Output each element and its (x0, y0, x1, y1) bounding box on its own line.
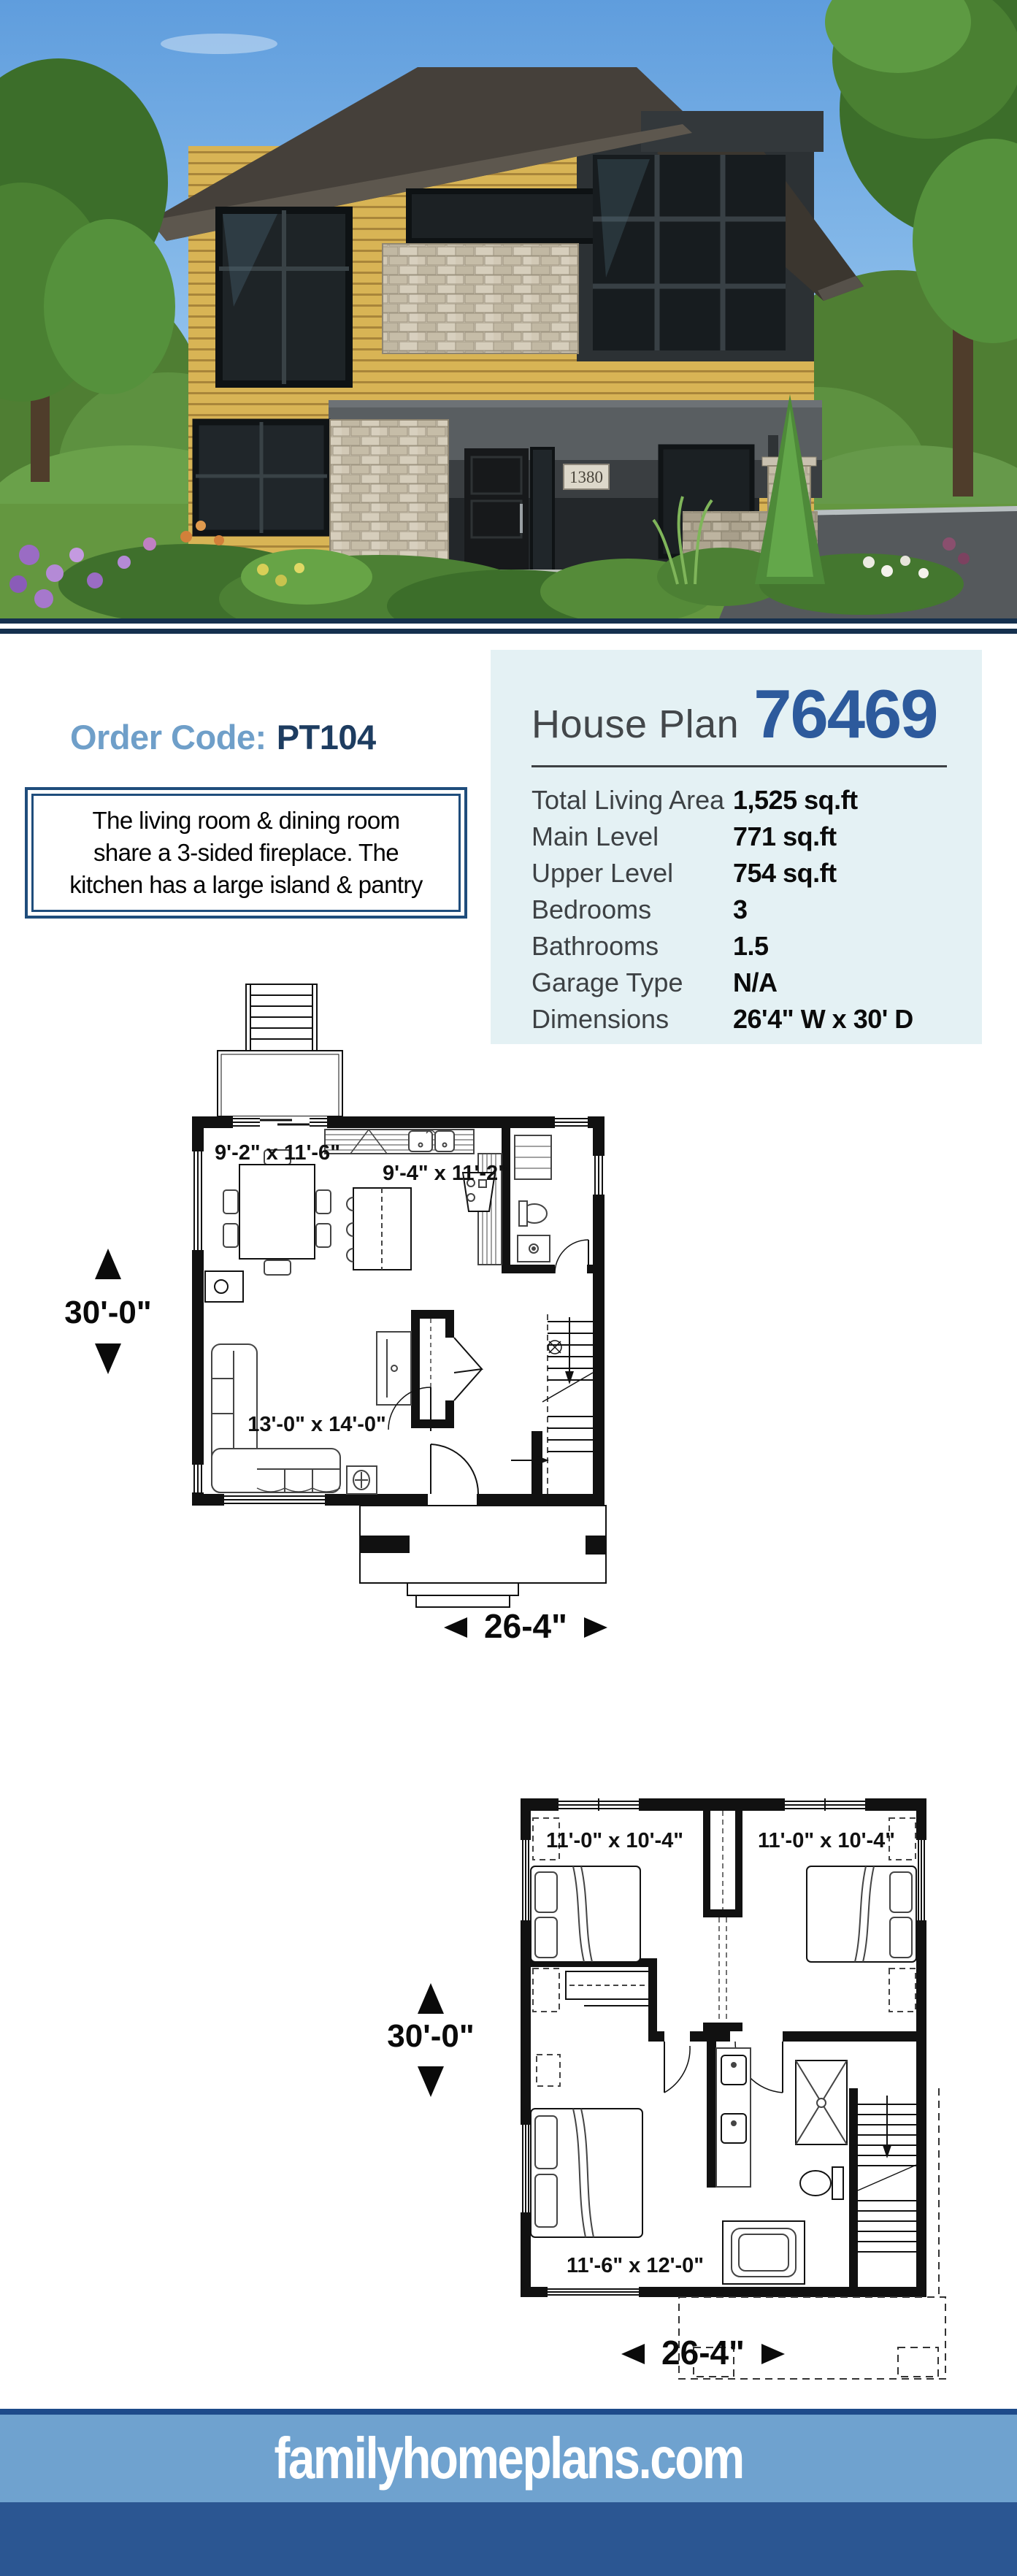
lower-left-window (196, 422, 327, 533)
bed-right (807, 1866, 916, 1962)
bathroom-fixtures (716, 2048, 847, 2284)
room-label-bedroom1: 11'-0" x 10'-4" (546, 1829, 683, 1852)
front-porch (360, 1506, 606, 1607)
floor-plan-main-level: 9'-2" x 11'-6" 9'-4" x 11'-2" 13'-0" x 1… (44, 978, 686, 1643)
clerestory-window (409, 191, 605, 241)
house-number-plaque: 1380 (564, 464, 609, 489)
stairs (511, 1314, 593, 1506)
spec-row-upper-level: Upper Level 754 sq.ft (531, 855, 947, 892)
toilet (800, 2167, 843, 2199)
dimension-depth-main: 30'-0" (64, 1249, 151, 1374)
order-code-value: PT104 (277, 718, 376, 756)
room-label-bedroom3: 11'-6" x 12'-0" (567, 2254, 704, 2277)
description-line-1: The living room & dining room (93, 805, 400, 837)
fireplace (411, 1310, 482, 1428)
dimension-depth-upper: 30'-0" (387, 1983, 474, 2097)
bed-left (531, 1866, 640, 1962)
site-link[interactable]: familyhomeplans.com (274, 2425, 742, 2492)
room-label-living: 13'-0" x 14'-0" (247, 1413, 386, 1436)
house-photo: 1380 (0, 0, 1017, 618)
footer-banner: familyhomeplans.com (0, 2415, 1017, 2502)
separator-bar-bottom (0, 629, 1017, 634)
plan-number: 76469 (753, 675, 937, 754)
spec-value: N/A (733, 965, 778, 1001)
wood-stove (205, 1271, 243, 1302)
house-plan-listing-page: 1380 (0, 0, 1017, 2576)
svg-text:30'-0": 30'-0" (387, 2018, 474, 2054)
powder-room (515, 1135, 588, 1273)
description-line-3: kitchen has a large island & pantry (69, 869, 422, 901)
room-label-dining: 9'-2" x 11'-6" (215, 1141, 340, 1165)
dimension-width-upper: 26-4" (621, 2334, 785, 2372)
house-photo-illustration: 1380 (0, 0, 1017, 618)
spec-label: Main Level (531, 819, 733, 855)
spec-value: 754 sq.ft (733, 855, 837, 892)
spec-value: 1.5 (733, 928, 769, 965)
room-label-bedroom2: 11'-0" x 10'-4" (758, 1829, 895, 1852)
upper-left-window (219, 210, 349, 384)
svg-text:26-4": 26-4" (661, 2334, 745, 2372)
spec-row-main-level: Main Level 771 sq.ft (531, 819, 947, 855)
spec-value: 771 sq.ft (733, 819, 837, 855)
plan-title: House Plan 76469 (531, 675, 947, 754)
stone-panel (383, 244, 578, 353)
spec-value: 1,525 sq.ft (733, 782, 858, 819)
bed-bottom (531, 2109, 642, 2237)
shower (796, 2061, 847, 2144)
floor-plan-upper-level: 11'-0" x 10'-4" 11'-0" x 10'-4" 11'-6" x… (350, 1774, 964, 2410)
house-number: 1380 (569, 468, 603, 486)
spec-value: 26'4" W x 30' D (733, 1001, 913, 1038)
order-code-label: Order Code: (70, 718, 266, 756)
bedroom3-closet (566, 1971, 650, 2006)
svg-text:30'-0": 30'-0" (64, 1295, 151, 1330)
description-line-2: share a 3-sided fireplace. The (93, 837, 399, 869)
kitchen-island (347, 1188, 411, 1270)
spec-label: Bedrooms (531, 892, 733, 928)
spec-divider (531, 765, 947, 767)
dimension-width-main: 26-4" (444, 1607, 607, 1639)
footer-bottom-band (0, 2502, 1017, 2576)
spec-label: Bathrooms (531, 928, 733, 965)
footer-top-rule (0, 2409, 1017, 2415)
spec-label: Total Living Area (531, 782, 733, 819)
kitchen-fixtures (325, 1130, 502, 1270)
description-box: The living room & dining room share a 3-… (25, 787, 467, 919)
floor-fixture (347, 1466, 377, 1494)
separator-bar-top (0, 618, 1017, 624)
room-label-kitchen: 9'-4" x 11'-2" (383, 1162, 508, 1185)
spec-row-bedrooms: Bedrooms 3 (531, 892, 947, 928)
spec-row-total-living-area: Total Living Area 1,525 sq.ft (531, 782, 947, 819)
front-door (464, 448, 553, 584)
spec-label: Upper Level (531, 855, 733, 892)
description-box-inner: The living room & dining room share a 3-… (31, 794, 461, 912)
order-code: Order Code:PT104 (70, 717, 376, 757)
right-corner-windows (593, 155, 786, 350)
svg-text:26-4": 26-4" (484, 1607, 567, 1639)
plan-title-prefix: House Plan (531, 702, 739, 747)
spec-value: 3 (733, 892, 748, 928)
tv-console (377, 1332, 411, 1405)
spec-row-bathrooms: Bathrooms 1.5 (531, 928, 947, 965)
house: 1380 (150, 67, 864, 618)
bathtub (723, 2221, 805, 2284)
dining-table (223, 1150, 331, 1275)
stairs-upper (858, 2096, 916, 2252)
